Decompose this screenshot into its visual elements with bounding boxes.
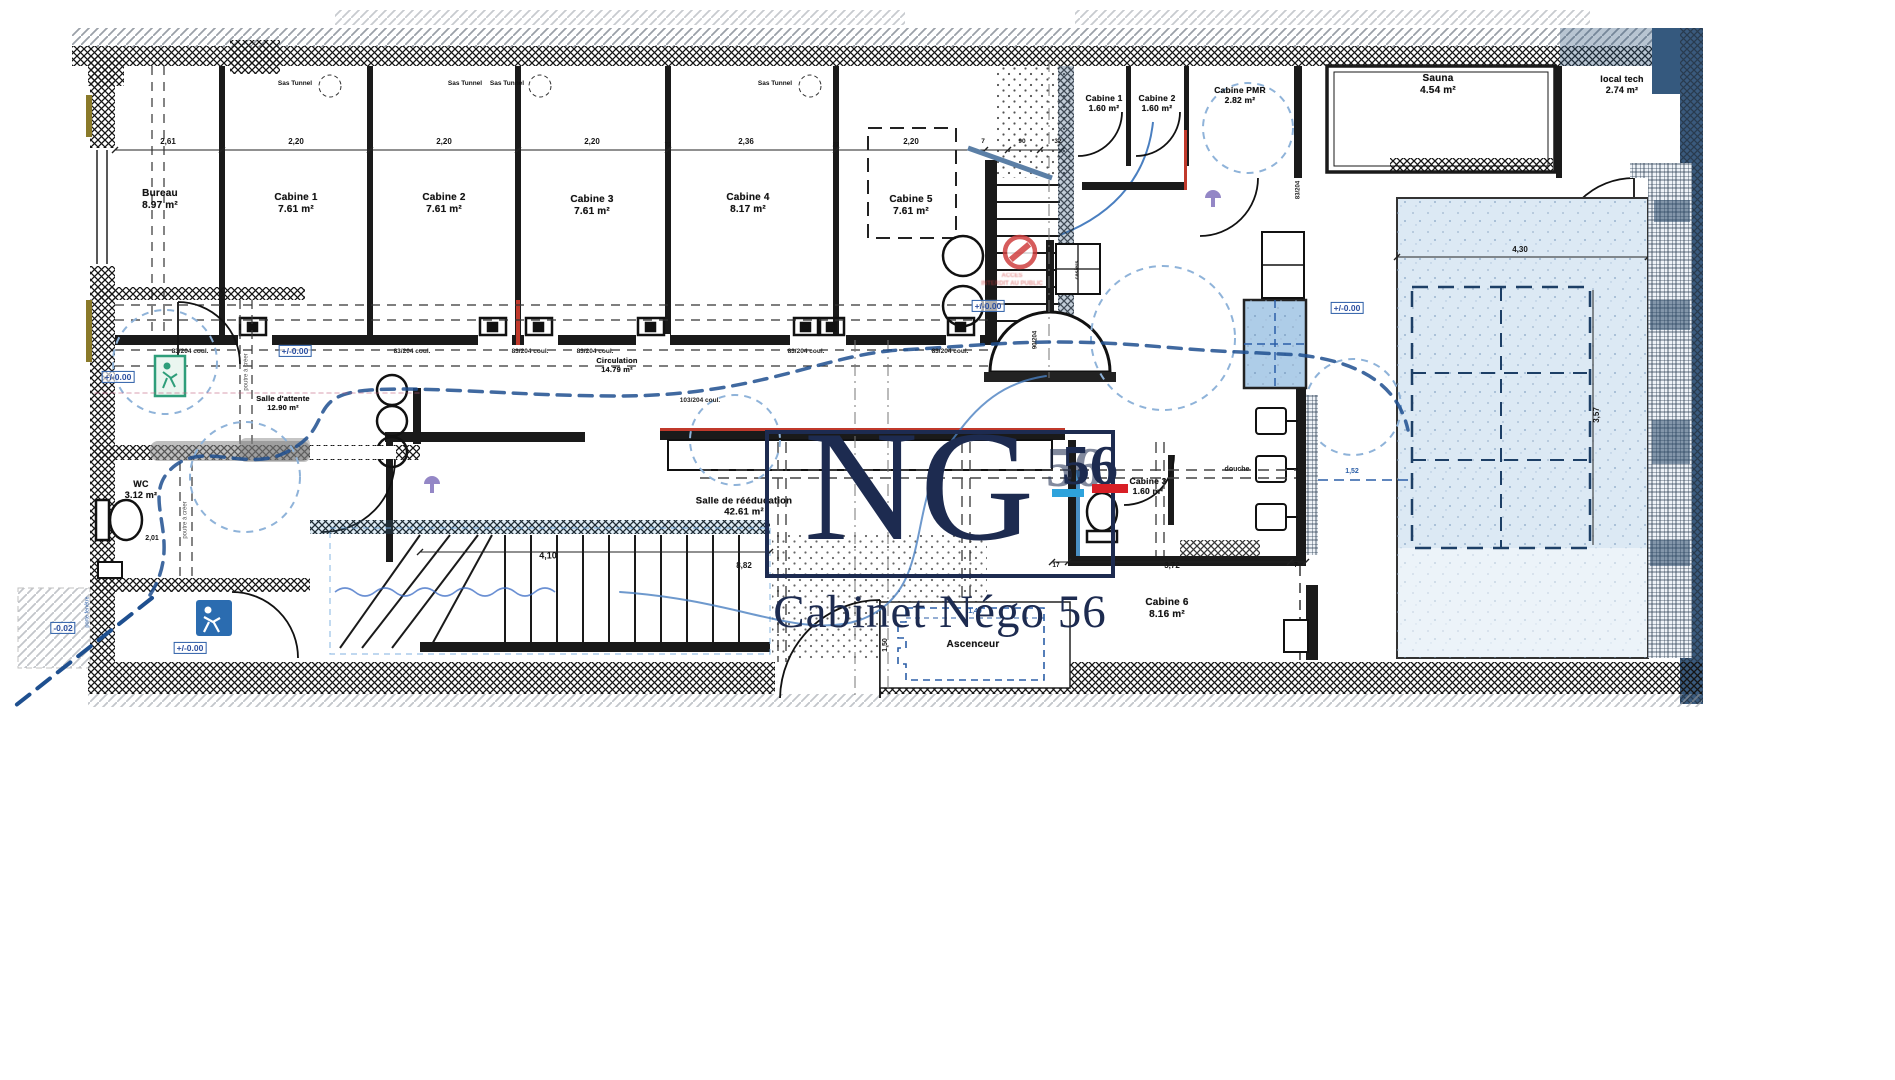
logo-red-bar: [1092, 484, 1128, 493]
agency-logo-monogram: NG: [770, 408, 1070, 598]
no-entry-icon: [1005, 237, 1035, 267]
shower-heads: [1256, 408, 1298, 530]
cabine5-dashed-outline: [868, 128, 956, 238]
floor-plan-page: Bureau 8.97 m²Cabine 1 7.61 m²Cabine 2 7…: [0, 0, 1895, 1080]
cabins-row: [112, 66, 1065, 366]
handwritten-annotation: [335, 588, 555, 596]
agency-logo-caption: Cabinet Négo 56: [640, 585, 1240, 639]
toilet-icon: [96, 500, 142, 540]
pool-tile-border: [1648, 163, 1692, 658]
logo-cyan-bar: [1052, 489, 1084, 497]
exit-sign-green-icon: [155, 356, 185, 396]
shower-area: [1244, 232, 1318, 560]
pool: [1302, 163, 1692, 658]
exit-sign-blue-icon: [196, 600, 232, 636]
